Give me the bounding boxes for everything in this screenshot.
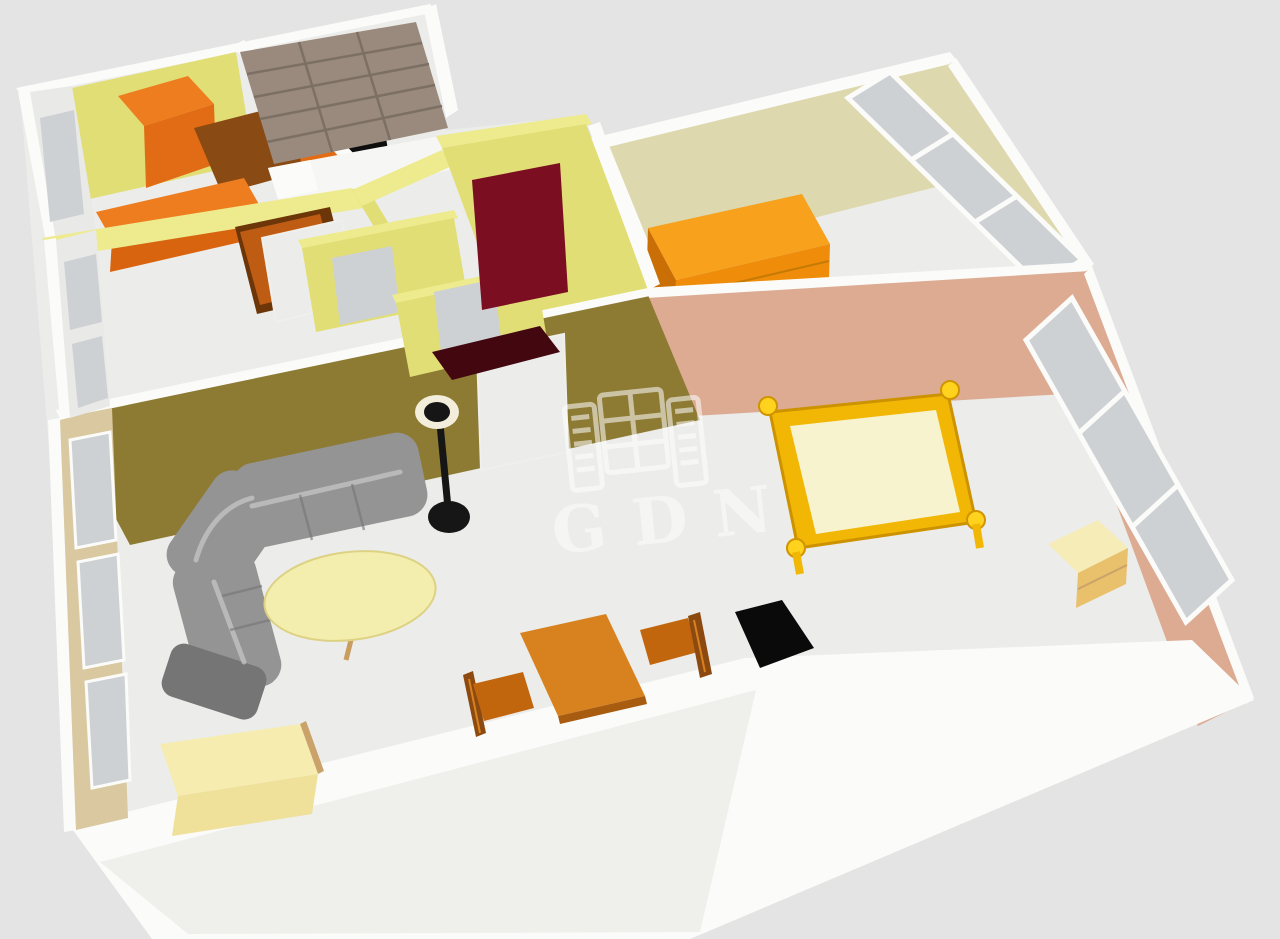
bath-door-opening [332,246,400,325]
bed-post [759,397,777,415]
left-window-glass [86,674,130,788]
lamp-base [428,501,470,533]
bed-post [941,381,959,399]
hall-window-glass [72,336,108,408]
entry-door-maroon [472,163,568,310]
left-window-glass [78,554,124,668]
floorplan-svg: GDN [0,0,1280,939]
hall-window-glass [64,254,102,330]
floorplan-3d-render: GDN [0,0,1280,939]
lamp-shade-center [424,402,450,422]
bed-mattress [790,410,960,534]
left-window-glass [70,432,116,548]
